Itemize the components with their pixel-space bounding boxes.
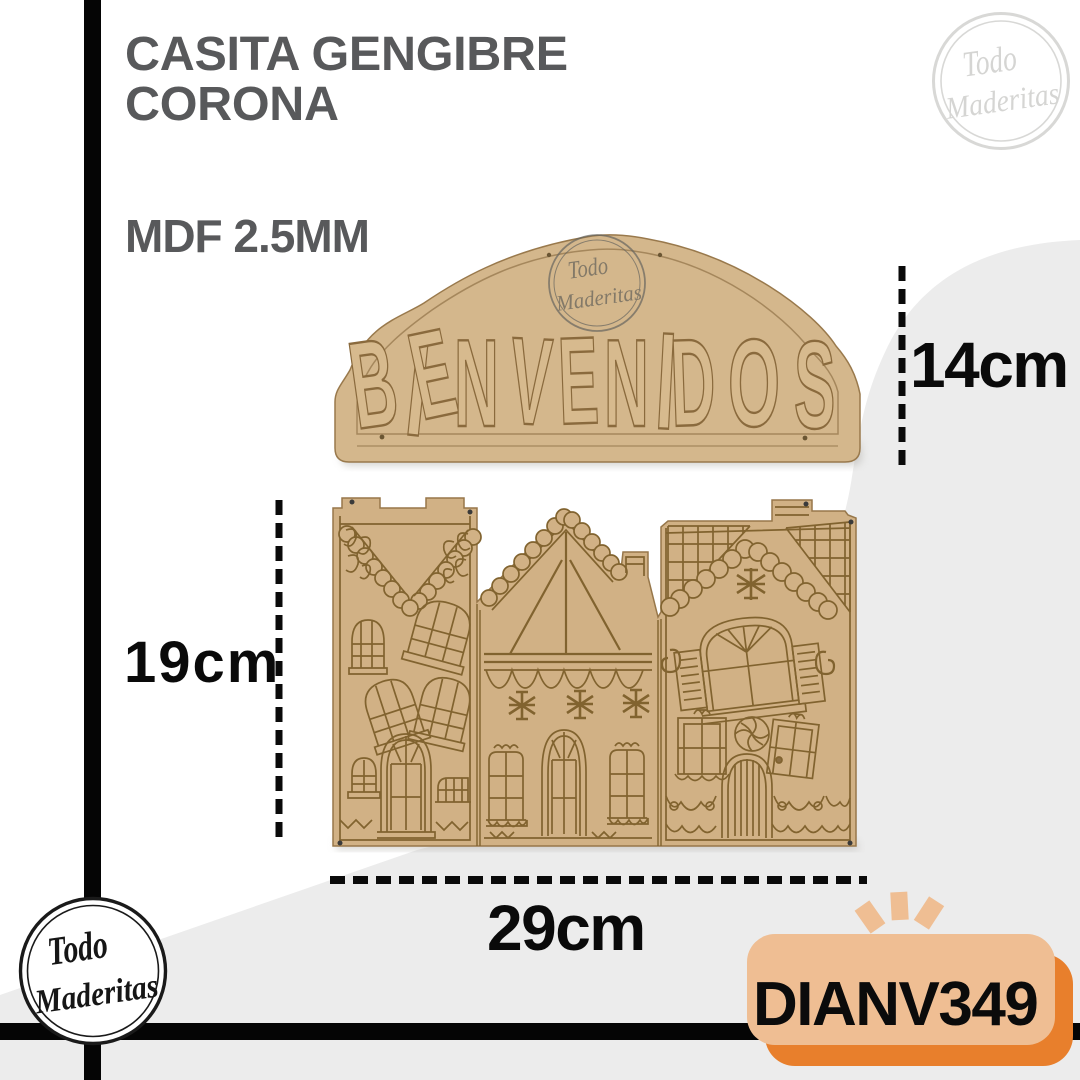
svg-text:N: N xyxy=(454,313,499,452)
svg-text:V: V xyxy=(507,311,556,452)
svg-text:Todo: Todo xyxy=(45,921,111,974)
svg-text:S: S xyxy=(794,315,835,454)
svg-text:Todo: Todo xyxy=(566,252,609,284)
svg-text:O: O xyxy=(728,315,780,453)
svg-text:Todo: Todo xyxy=(960,37,1019,84)
svg-text:Maderitas: Maderitas xyxy=(943,75,1062,126)
svg-text:D: D xyxy=(668,312,718,453)
svg-text:N: N xyxy=(604,313,649,452)
